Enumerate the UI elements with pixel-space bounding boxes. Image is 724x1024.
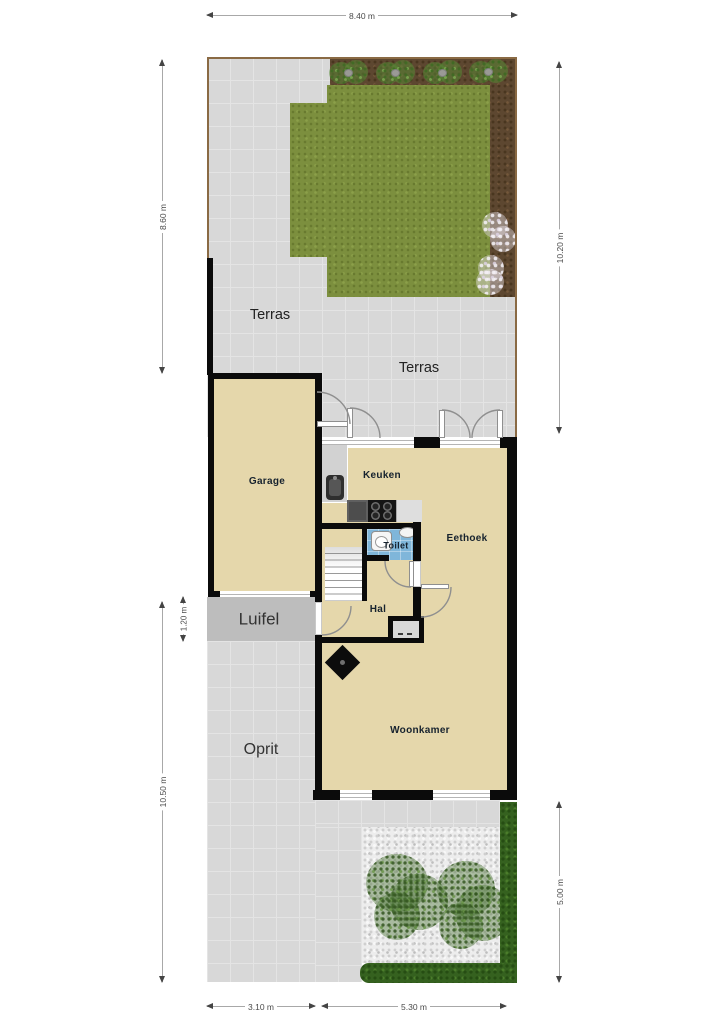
kitchen-counter-right (396, 500, 422, 522)
floor-plan-canvas: Terras Terras Garage Luifel Oprit (0, 0, 724, 1024)
dimension-backyard-depth: 5.00 m (556, 802, 564, 982)
hedge-right (500, 802, 517, 983)
hall-label: Hal (370, 605, 386, 615)
hall-dining-door-leaf (421, 584, 449, 589)
backyard-paving-left (315, 827, 362, 982)
kitchen-stove (368, 500, 396, 522)
dimension-text: 8.60 m (157, 201, 169, 233)
dimension-arrow-icon (159, 367, 165, 374)
dimension-text: 8.40 m (346, 10, 378, 22)
dining-door-leaf-right (497, 410, 503, 438)
soil-border-right (490, 59, 515, 297)
house-wall-bottom-right (490, 790, 517, 800)
house-wall-top-mid (414, 437, 440, 448)
house-wall-bottom-left (313, 790, 340, 800)
dimension-arrow-icon (309, 1003, 316, 1009)
dimension-arrow-icon (206, 1003, 213, 1009)
sink-basin (329, 479, 341, 496)
garage-wall-left (208, 373, 214, 597)
dimension-arrow-icon (556, 61, 562, 68)
dimension-driveway-depth: 10.50 m (159, 602, 167, 982)
sink-faucet (333, 476, 337, 480)
fence-left (207, 57, 209, 258)
dimension-canopy-depth: 1.20 m (180, 597, 188, 641)
dimension-text: 10.20 m (554, 229, 566, 266)
stove-burner-icon (383, 502, 392, 511)
dimension-arrow-icon (206, 12, 213, 18)
dimension-arrow-icon (159, 601, 165, 608)
fireplace-flue (339, 659, 346, 666)
dimension-text: 5.30 m (398, 1001, 430, 1013)
garage-wall-right (315, 373, 322, 437)
house-wall-right (507, 437, 517, 800)
dimension-house-width: 5.30 m (322, 1003, 506, 1011)
closet-vent-icon (398, 633, 403, 635)
dimension-arrow-icon (180, 596, 186, 603)
dimension-garden-depth-left: 8.60 m (159, 60, 167, 373)
dimension-arrow-icon (556, 801, 562, 808)
house-wall-left-lower (315, 635, 322, 800)
front-door-opening (315, 602, 322, 635)
soil-border-top (330, 59, 515, 85)
dimension-arrow-icon (556, 427, 562, 434)
toilet-wall-left (362, 523, 367, 601)
lawn-main (327, 85, 490, 297)
closet-interior (393, 621, 419, 638)
house-wall-bottom-mid (372, 790, 433, 800)
house-wall-left-upper (315, 437, 322, 602)
toilet-label: Toilet (383, 542, 408, 551)
dimension-garden-depth-right: 10.20 m (556, 62, 564, 433)
dining-double-door-threshold (440, 437, 500, 448)
hall-dining-wall-upper (413, 522, 421, 561)
staircase (325, 547, 362, 601)
dimension-text: 1.20 m (179, 604, 190, 634)
livingroom-window-left (340, 790, 372, 800)
livingroom-window-right (433, 790, 490, 800)
lawn-extension (290, 103, 327, 257)
driveway-paving (207, 641, 315, 982)
dimension-arrow-icon (500, 1003, 507, 1009)
toilet-wall-bottom (362, 555, 389, 561)
hedge-bottom (360, 963, 517, 983)
stove-burner-icon (383, 511, 392, 520)
backyard-paving-strip (315, 800, 500, 827)
hall-dining-door-opening (413, 561, 421, 587)
fence-right (515, 57, 517, 437)
livingroom-label: Woonkamer (390, 726, 450, 736)
kitchen-appliance (347, 500, 368, 522)
dimension-arrow-icon (159, 976, 165, 983)
fence-top (207, 57, 517, 59)
terrace-upper-label: Terras (250, 308, 290, 323)
kitchen-label: Keuken (363, 471, 401, 481)
stove-burner-icon (371, 511, 380, 520)
gravel-area (362, 827, 500, 963)
terrace-lower-label: Terras (399, 361, 439, 376)
dimension-arrow-icon (180, 635, 186, 642)
dimension-arrow-icon (321, 1003, 328, 1009)
canopy-label: Luifel (239, 611, 280, 628)
toilet-door-leaf (409, 561, 414, 587)
stove-burner-icon (371, 502, 380, 511)
closet-vent-icon (407, 633, 412, 635)
dimension-text: 3.10 m (245, 1001, 277, 1013)
dining-door-leaf-left (439, 410, 445, 438)
garage-wall-top (208, 373, 322, 379)
dimension-text: 10.50 m (157, 774, 169, 811)
dimension-arrow-icon (511, 12, 518, 18)
terrace-side-wall (207, 258, 213, 375)
dimension-plot-width: 8.40 m (207, 12, 517, 20)
kitchen-sink (326, 475, 344, 500)
dimension-arrow-icon (556, 976, 562, 983)
kitchen-backdoor-leaf (347, 408, 353, 438)
dimension-arrow-icon (159, 59, 165, 66)
driveway-label: Oprit (244, 742, 279, 758)
dimension-text: 5.00 m (554, 876, 566, 908)
dimension-driveway-width: 3.10 m (207, 1003, 315, 1011)
passage-door-leaf (317, 421, 350, 427)
dining-label: Eethoek (446, 534, 487, 544)
garage-label: Garage (249, 477, 285, 487)
